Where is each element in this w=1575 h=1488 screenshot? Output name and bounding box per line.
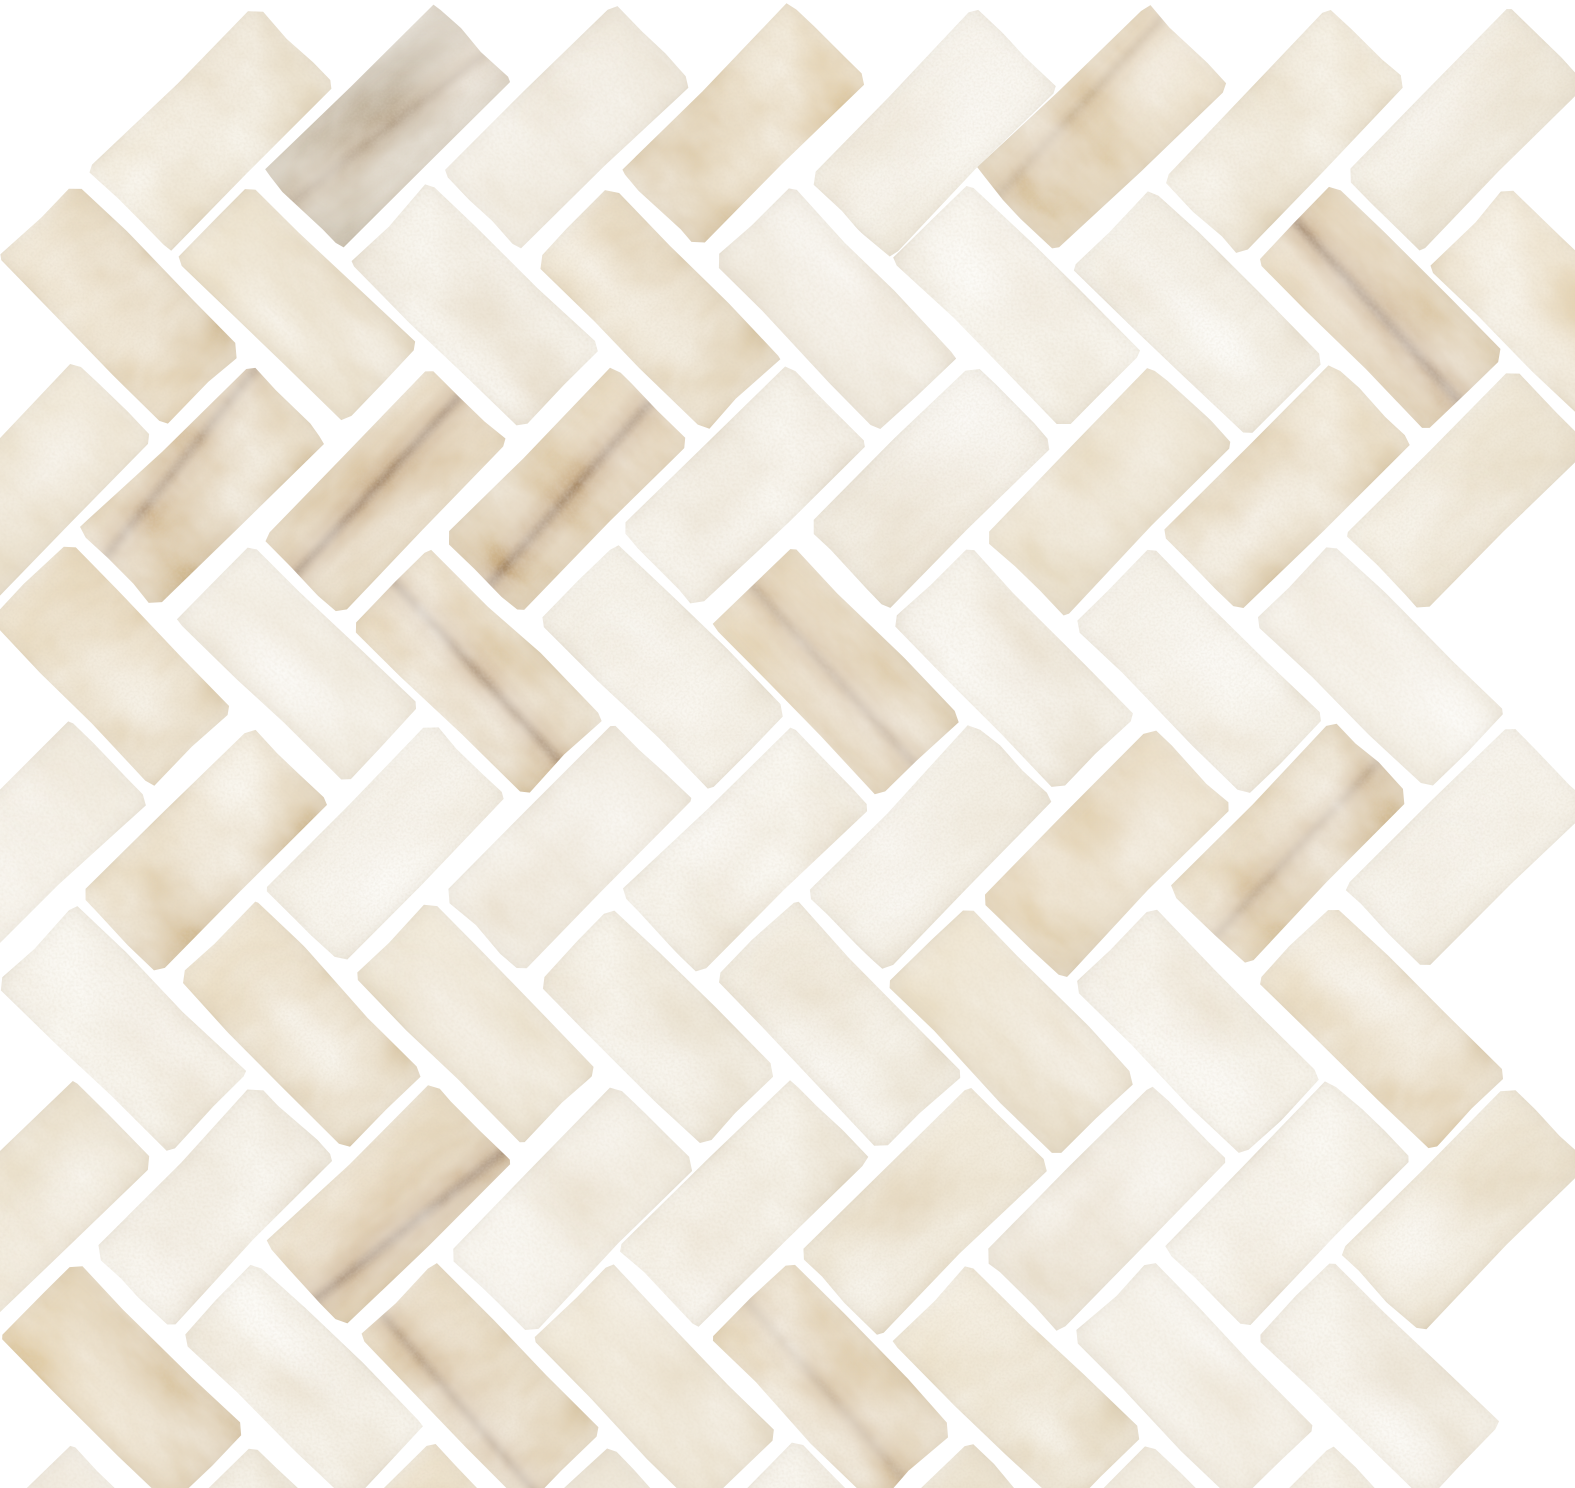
marble-tile [711, 897, 965, 1155]
marble-tile [441, 363, 693, 617]
marble-tile [439, 1, 694, 254]
marble-tile [261, 718, 510, 968]
marble-tile [1251, 540, 1508, 794]
marble-tile [1253, 181, 1507, 434]
marble-tile [978, 724, 1235, 983]
marble-tile [0, 179, 245, 429]
marble-tile [173, 541, 422, 787]
marble-tile [618, 723, 874, 977]
marble-tile [441, 720, 696, 976]
marble-tile [885, 903, 1140, 1160]
marble-tile [1070, 185, 1328, 441]
marble-tile [618, 0, 870, 252]
marble-tile [347, 179, 604, 433]
marble-tile [1343, 364, 1575, 615]
warm-blotch [978, 724, 1235, 983]
warm-blotch [618, 0, 870, 252]
marble-tile [259, 363, 511, 618]
marble-tile [534, 904, 782, 1149]
warm-blotch [0, 1257, 249, 1488]
marble-tile [0, 538, 236, 790]
marble-tile [804, 361, 1057, 612]
marble-tile [351, 897, 600, 1147]
marble-tile [262, 0, 514, 252]
marble-tile [532, 184, 784, 436]
mosaic-sheet [0, 0, 1575, 1488]
marble-tile [262, 1079, 515, 1329]
warm-blotch [0, 179, 245, 429]
marble-tile [1070, 544, 1327, 800]
marble-tile [981, 362, 1236, 620]
marble-tile [888, 543, 1138, 795]
marble-tile [979, 1082, 1231, 1335]
marble-tile [616, 360, 870, 612]
marble-tile [174, 181, 422, 426]
marble-tile [796, 1082, 1053, 1339]
marble-tile [348, 545, 606, 800]
marble-tile [85, 2, 338, 254]
marble-tile [90, 1080, 337, 1330]
marble-tile [174, 898, 427, 1154]
marble-tile [0, 1257, 249, 1488]
warm-blotch [0, 538, 236, 790]
marble-tile [1159, 4, 1410, 259]
